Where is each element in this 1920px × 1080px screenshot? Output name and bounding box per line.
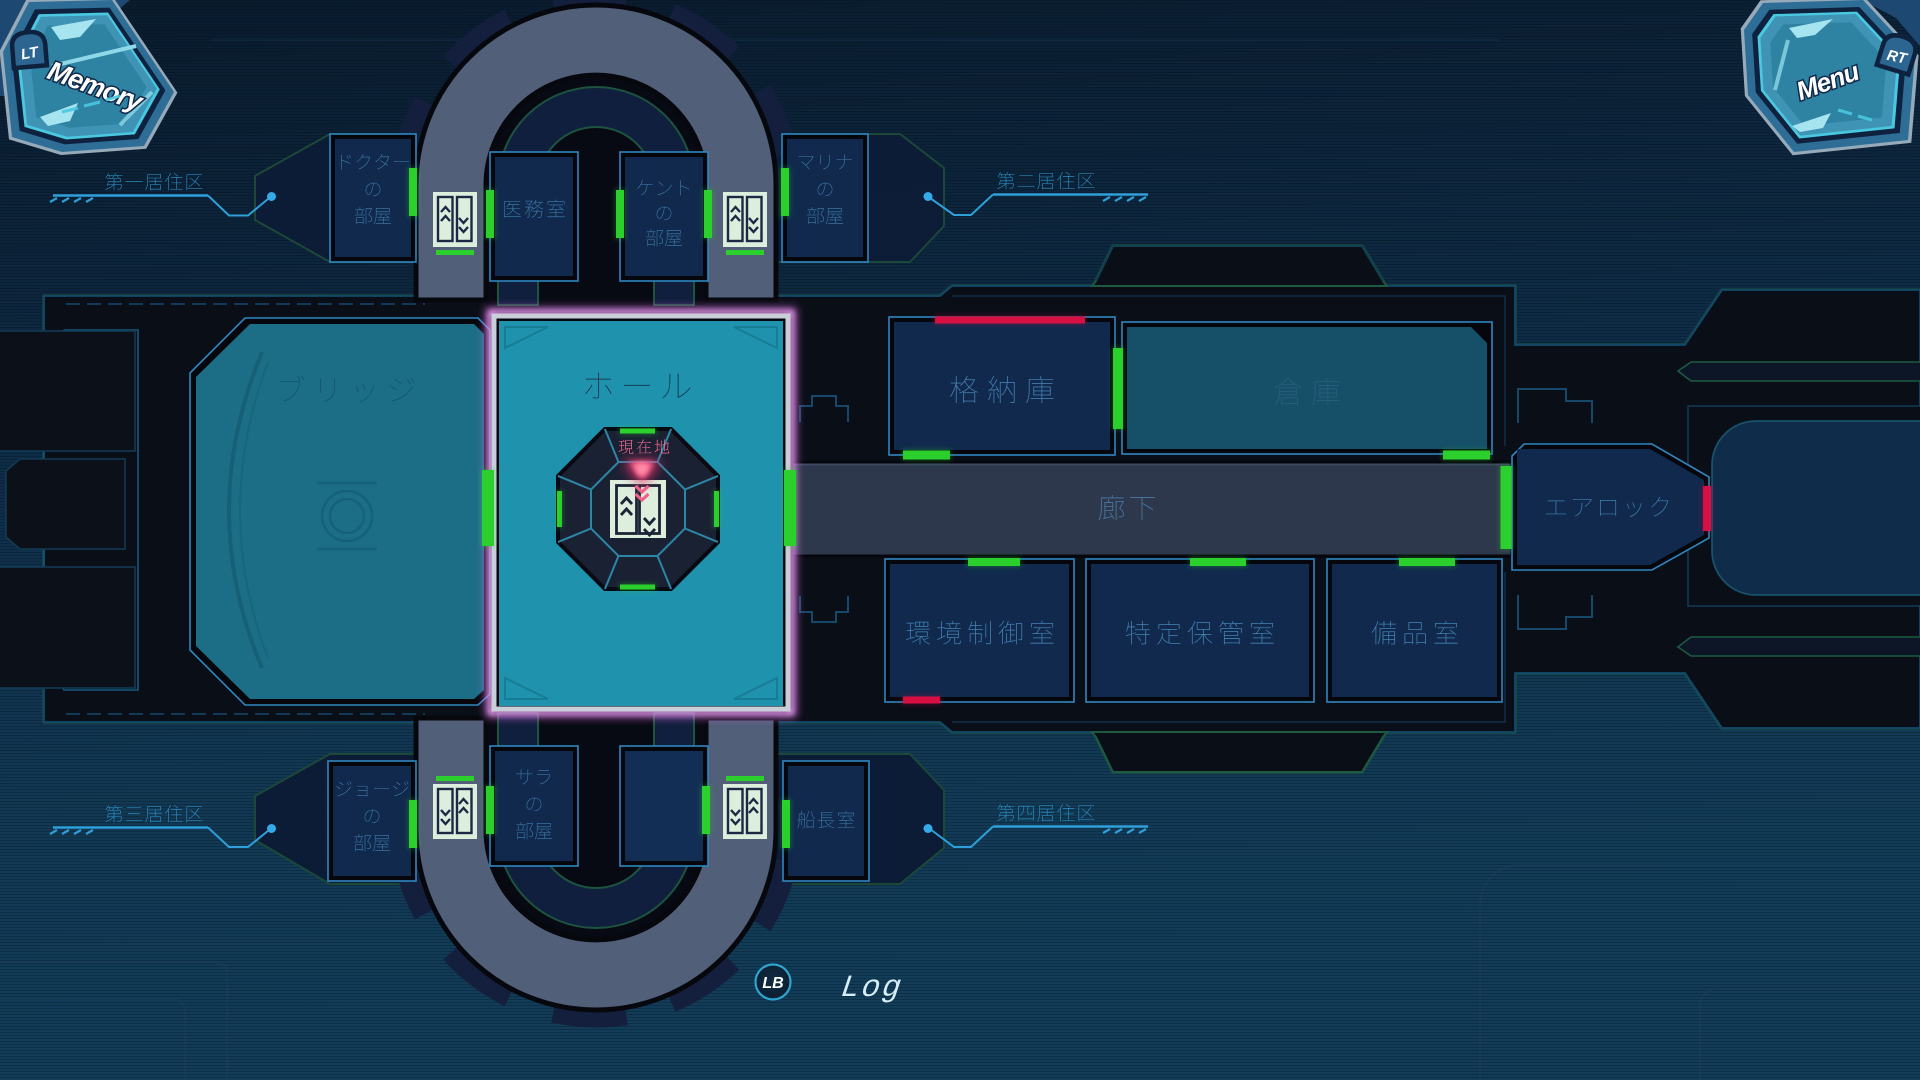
svg-text:Log: Log [839,971,906,1006]
svg-text:LB: LB [762,975,783,992]
